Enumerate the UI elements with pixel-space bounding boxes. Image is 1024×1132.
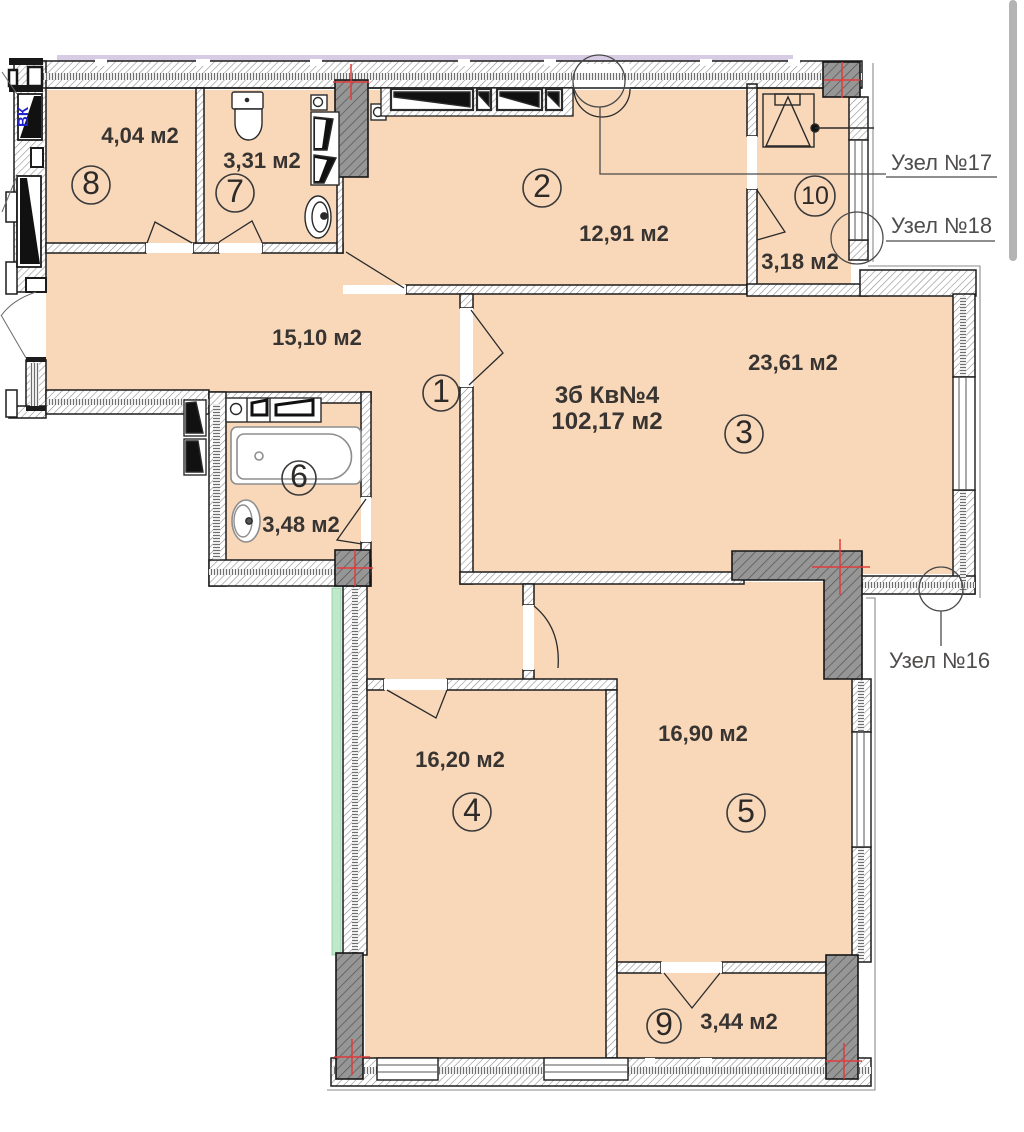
svg-text:ВК: ВК: [15, 106, 32, 127]
svg-text:3,31 м2: 3,31 м2: [223, 148, 300, 173]
svg-text:3б Кв№4: 3б Кв№4: [555, 382, 660, 409]
svg-text:3,48 м2: 3,48 м2: [262, 512, 339, 537]
svg-text:4: 4: [463, 792, 481, 828]
svg-text:3: 3: [735, 414, 753, 450]
svg-text:4,04 м2: 4,04 м2: [101, 123, 178, 148]
svg-text:9: 9: [655, 1006, 673, 1042]
svg-text:23,61 м2: 23,61 м2: [748, 350, 838, 375]
svg-text:3,44 м2: 3,44 м2: [700, 1009, 777, 1034]
svg-text:2: 2: [533, 168, 551, 204]
svg-text:16,90 м2: 16,90 м2: [658, 721, 748, 746]
svg-text:15,10 м2: 15,10 м2: [272, 325, 362, 350]
svg-text:6: 6: [290, 458, 308, 494]
svg-text:7: 7: [226, 173, 244, 209]
svg-text:8: 8: [82, 165, 100, 201]
svg-text:Узел №17: Узел №17: [891, 150, 992, 175]
svg-text:Узел №18: Узел №18: [891, 213, 992, 238]
svg-text:12,91 м2: 12,91 м2: [579, 221, 669, 246]
svg-text:5: 5: [737, 793, 755, 829]
svg-text:10: 10: [801, 182, 829, 210]
svg-text:102,17 м2: 102,17 м2: [551, 408, 662, 435]
svg-text:3,18 м2: 3,18 м2: [761, 249, 838, 274]
svg-text:16,20 м2: 16,20 м2: [415, 747, 505, 772]
svg-text:Узел №16: Узел №16: [889, 648, 990, 673]
svg-text:1: 1: [432, 373, 450, 409]
